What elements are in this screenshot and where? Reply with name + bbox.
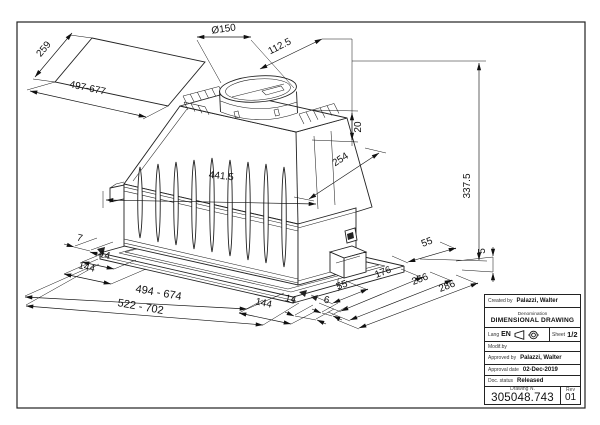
first-angle-projection-cone-icon bbox=[513, 330, 526, 340]
title-block-approval-date-row: Approval date 02-Dec-2019 bbox=[485, 364, 580, 375]
approved-by-value: Palazzi, Walter bbox=[520, 355, 561, 361]
lang-value: EN bbox=[501, 331, 511, 338]
drawing-number-cell: Drawing N. 305048.743 bbox=[485, 387, 560, 404]
dim-label-total-height: 337.5 bbox=[462, 173, 473, 198]
first-angle-projection-circles-icon bbox=[528, 330, 539, 340]
rev-cell: Rev 01 bbox=[560, 387, 580, 404]
title-block-denomination-row: Denomination DIMENSIONAL DRAWING bbox=[485, 307, 580, 327]
sheet-label: Sheet bbox=[552, 332, 565, 338]
title-block-doc-status-row: Doc. status Released bbox=[485, 375, 580, 386]
title-block-modified-row: Modif.by bbox=[485, 341, 580, 351]
created-by-value: Palazzi, Walter bbox=[516, 298, 557, 304]
doc-status-label: Doc. status bbox=[488, 378, 513, 384]
title-block-created-row: Created by Palazzi, Walter bbox=[485, 295, 580, 307]
dim-label-panel-depth: 259 bbox=[35, 39, 54, 59]
title-block-drawing-number-row: Drawing N. 305048.743 Rev 01 bbox=[485, 386, 580, 404]
lang-cell: Lang EN bbox=[485, 328, 549, 341]
denomination-value: DIMENSIONAL DRAWING bbox=[491, 317, 575, 324]
dim-label-depth-55-rear: 55 bbox=[420, 235, 435, 249]
lang-label: Lang bbox=[488, 332, 499, 338]
dim-label-rib-height: 20 bbox=[353, 121, 364, 133]
dim-label-left-offset-144: 144 bbox=[77, 260, 96, 275]
sheet-value: 1/2 bbox=[567, 330, 577, 339]
dim-label-left-offset-14: 14 bbox=[98, 249, 112, 262]
ceiling-panel bbox=[55, 38, 205, 106]
rev-value: 01 bbox=[565, 393, 576, 403]
dim-label-flange-height: 5 bbox=[477, 248, 488, 254]
approval-date-value: 02-Dec-2019 bbox=[523, 367, 558, 373]
approval-date-label: Approval date bbox=[488, 367, 519, 373]
approved-by-label: Approved by bbox=[488, 355, 516, 361]
created-by-label: Created by bbox=[488, 298, 512, 304]
dimensional-drawing-page: 259 497-677 Ø150 112.5 20 254 441.5 337.… bbox=[0, 0, 600, 425]
dim-label-right-offset-14: 14 bbox=[284, 293, 298, 306]
title-block-lang-row: Lang EN Sheet 1/2 bbox=[485, 327, 580, 341]
dim-label-cutout-width: 494 - 674 bbox=[135, 283, 183, 303]
dim-label-duct-offset: 112.5 bbox=[267, 36, 294, 57]
title-block: Created by Palazzi, Walter Denomination … bbox=[484, 294, 581, 405]
dim-label-left-offset-7: 7 bbox=[76, 233, 84, 245]
drawing-number-value: 305048.743 bbox=[491, 392, 554, 404]
title-block-approved-row: Approved by Palazzi, Walter bbox=[485, 351, 580, 364]
dim-label-depth-286: 286 bbox=[437, 278, 457, 294]
dim-label-duct-diameter: Ø150 bbox=[211, 22, 237, 36]
dim-label-right-offset-144: 144 bbox=[254, 296, 273, 310]
doc-status-value: Released bbox=[517, 378, 543, 384]
modified-by-label: Modif.by bbox=[488, 344, 507, 350]
sheet-cell: Sheet 1/2 bbox=[549, 328, 580, 341]
dim-label-right-offset-6: 6 bbox=[323, 295, 331, 307]
